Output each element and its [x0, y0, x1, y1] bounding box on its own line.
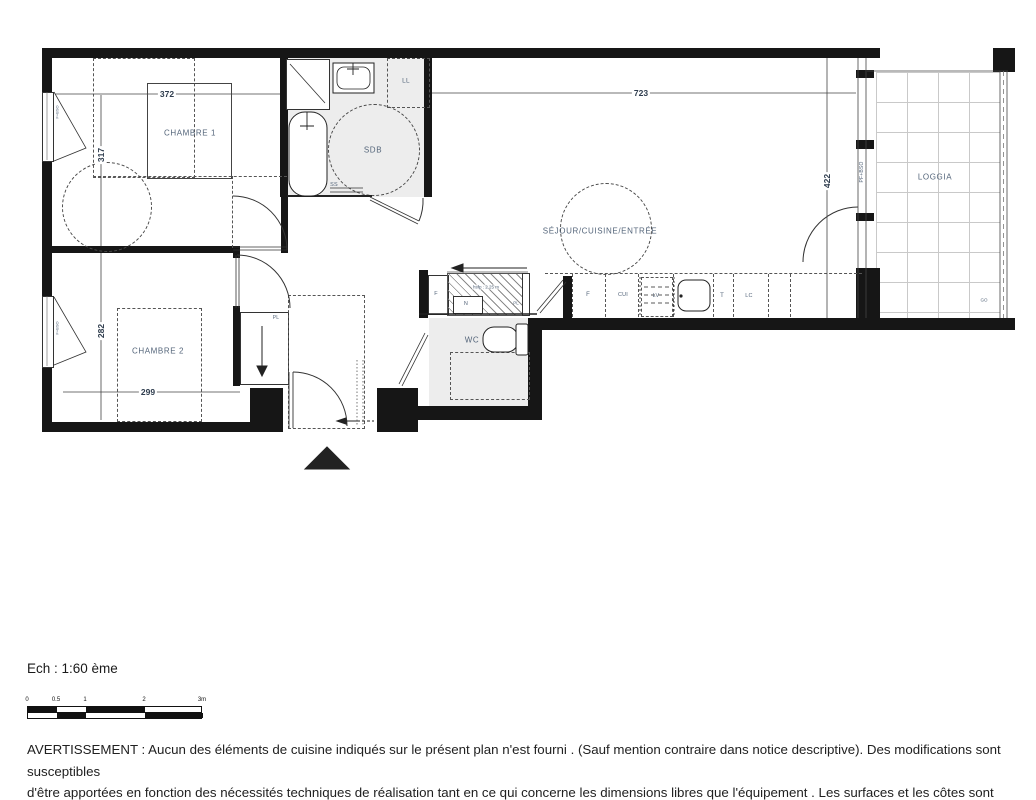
- kitchen-lc-label: LC: [745, 293, 752, 299]
- niche-label: N: [464, 301, 468, 307]
- entrance-triangle: [305, 447, 349, 469]
- scale-bar: 0 0.5 1 2 3m: [27, 706, 202, 719]
- room-label-sdb: SDB: [364, 146, 382, 155]
- washer-ll-label: LL: [402, 78, 410, 85]
- corridor-arrow-head: [337, 418, 346, 424]
- door-arc-loggia: [803, 207, 858, 262]
- room-label-chambre1: CHAMBRE 1: [164, 129, 216, 138]
- room-label-chambre2: CHAMBRE 2: [132, 347, 184, 356]
- casement-chambre1: [54, 92, 86, 161]
- scale-text: Ech : 1:60 ème: [27, 661, 118, 676]
- window2-label: F+BSO: [55, 321, 60, 334]
- kitchen-sink: [678, 280, 710, 311]
- door-leaf-sdb: [370, 197, 419, 224]
- entry-height-label: hsfp : 2.25 m: [472, 285, 500, 290]
- scale-tick: 3m: [198, 697, 206, 703]
- door-arc-entrance: [293, 372, 347, 426]
- room-label-sejour: SÉJOUR/CUISINE/ENTRÉE: [543, 227, 657, 236]
- dim-422: 422: [822, 172, 832, 190]
- door-leaf-chambre2: [236, 255, 239, 308]
- room-label-wc: WC: [465, 336, 480, 345]
- door-leaf-entrance: [289, 372, 293, 428]
- scale-tick: 1: [83, 697, 86, 703]
- ss-label: SS: [330, 182, 338, 188]
- scale-tick: 0: [25, 697, 28, 703]
- door-arc-chambre1: [233, 196, 287, 250]
- window1-label: F+BSO: [55, 105, 60, 118]
- scale-bar-row: [27, 712, 202, 719]
- door-leaf-chambre1: [233, 247, 287, 250]
- dim-317: 317: [96, 146, 106, 164]
- dim-723: 723: [632, 88, 650, 98]
- duct-diagonal: [290, 64, 325, 103]
- closet-pl-label: PL: [273, 315, 280, 321]
- room-label-loggia: LOGGIA: [918, 173, 952, 182]
- entry-arrow-head: [452, 264, 463, 272]
- entry-pl-label: PL: [513, 301, 519, 306]
- disclaimer-text: AVERTISSEMENT : Aucun des éléments de cu…: [27, 739, 1022, 800]
- threshold-dots: [357, 360, 363, 426]
- disclaimer-line: d'être apportées en fonction des nécessi…: [27, 782, 1022, 800]
- scale-tick: 0.5: [52, 697, 60, 703]
- kitchen-f-label: F: [586, 292, 590, 298]
- plan-linework: [0, 0, 1036, 520]
- door-arc-chambre2: [237, 255, 290, 308]
- closet-arrow-head: [257, 366, 267, 376]
- toilet-tank: [516, 324, 528, 355]
- disclaimer-line: AVERTISSEMENT : Aucun des éléments de cu…: [27, 739, 1022, 782]
- fridge-closet-label: F: [434, 291, 438, 297]
- dim-372: 372: [158, 89, 176, 99]
- ss-step: [330, 188, 363, 192]
- dim-282: 282: [96, 322, 106, 340]
- kitchen-t-label: T: [720, 293, 724, 299]
- dim-299: 299: [139, 387, 157, 397]
- kitchen-cui-label: CUI: [618, 292, 628, 298]
- door-leaf-wc: [399, 333, 428, 386]
- sdb-sink-basin: [337, 67, 370, 89]
- toilet-bowl: [483, 327, 518, 352]
- kitchen-sink-faucet: [679, 294, 682, 297]
- kitchen-lv-label: LV: [653, 293, 660, 299]
- door-arc-sdb: [419, 198, 423, 221]
- bathtub: [289, 112, 327, 196]
- go-label: GO: [980, 298, 987, 303]
- window-wall-lines: [858, 58, 866, 318]
- floor-plan-page: CHAMBRE 1 CHAMBRE 2 SDB WC SÉJOUR/CUISIN…: [0, 0, 1036, 800]
- pf-bso-label: PF+BSO: [859, 161, 865, 182]
- scale-tick: 2: [142, 697, 145, 703]
- door-leaf-kitchen: [537, 280, 566, 313]
